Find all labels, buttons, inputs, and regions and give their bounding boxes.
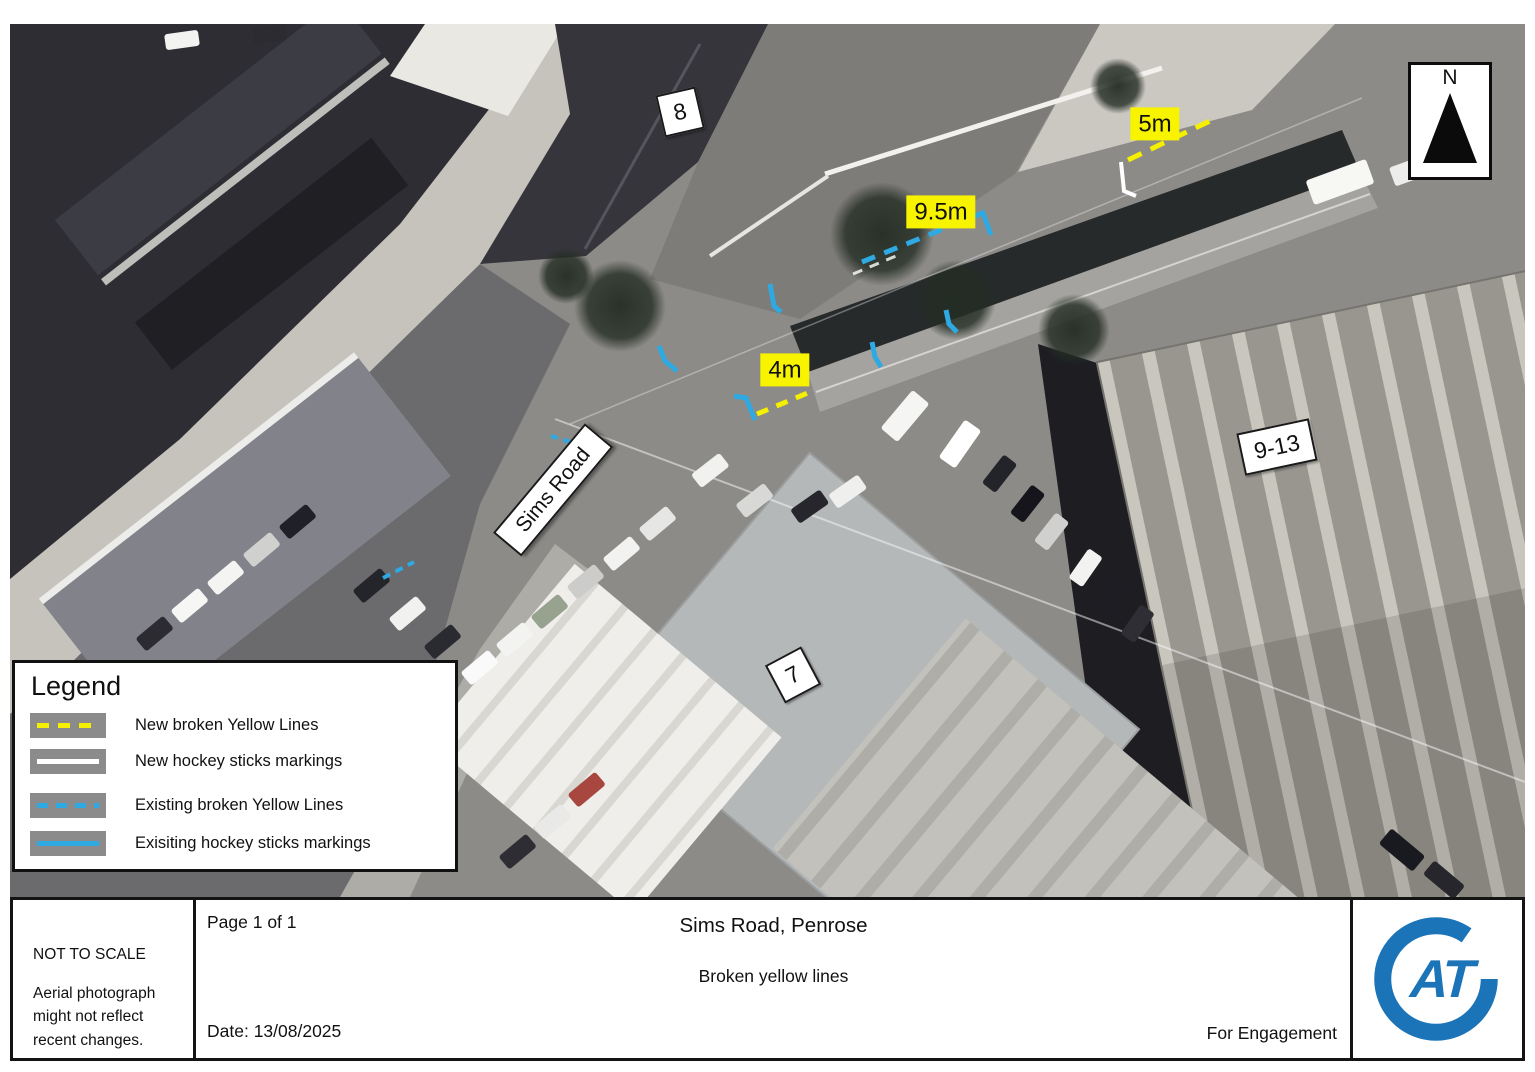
swatch-existing-broken-yellow-lines: [30, 793, 106, 818]
measurement-label-9-5m: 9.5m: [906, 195, 975, 228]
divider: [193, 900, 196, 1058]
blue-dashed-line-icon: [37, 803, 99, 808]
drawing-subtitle: Broken yellow lines: [203, 966, 1344, 987]
measurement-label-4m: 4m: [760, 353, 809, 386]
blue-solid-line-icon: [37, 841, 99, 846]
scale-note: NOT TO SCALE: [33, 946, 146, 964]
at-logo-icon: AT: [1368, 911, 1504, 1047]
engineering-drawing-page: { "map": { "north_label": "N", "road_lab…: [0, 0, 1535, 1072]
north-label: N: [1411, 66, 1489, 90]
yellow-dashed-line-icon: [37, 723, 99, 728]
legend-item: Existing broken Yellow Lines: [30, 793, 343, 818]
legend-item: New broken Yellow Lines: [30, 713, 318, 738]
aerial-map: 5m 9.5m 4m 8 9-13 7 Sims Road N Legend N…: [10, 24, 1525, 897]
measurement-label-5m: 5m: [1130, 107, 1179, 140]
legend-item: Exisiting hockey sticks markings: [30, 831, 371, 856]
legend-item-label: Existing broken Yellow Lines: [135, 796, 343, 815]
swatch-existing-hockey-sticks: [30, 831, 106, 856]
white-solid-line-icon: [37, 759, 99, 764]
legend-title: Legend: [31, 671, 455, 702]
logo-cell: AT: [1350, 900, 1522, 1058]
photo-note: Aerial photograph might not reflect rece…: [33, 982, 189, 1052]
status-label: For Engagement: [1207, 1023, 1337, 1044]
drawing-title: Sims Road, Penrose: [203, 914, 1344, 938]
legend-item-label: Exisiting hockey sticks markings: [135, 834, 371, 853]
north-arrow: N: [1408, 62, 1492, 180]
swatch-new-broken-yellow-lines: [30, 713, 106, 738]
legend-item-label: New hockey sticks markings: [135, 752, 342, 771]
at-logo-text: AT: [1404, 950, 1482, 1009]
legend-item-label: New broken Yellow Lines: [135, 716, 318, 735]
north-arrow-icon: [1423, 93, 1477, 163]
legend-item: New hockey sticks markings: [30, 749, 342, 774]
drawing-date: Date: 13/08/2025: [207, 1021, 341, 1042]
swatch-new-hockey-sticks: [30, 749, 106, 774]
title-block: NOT TO SCALE Aerial photograph might not…: [10, 897, 1525, 1061]
legend: Legend New broken Yellow Lines New hocke…: [12, 660, 458, 872]
